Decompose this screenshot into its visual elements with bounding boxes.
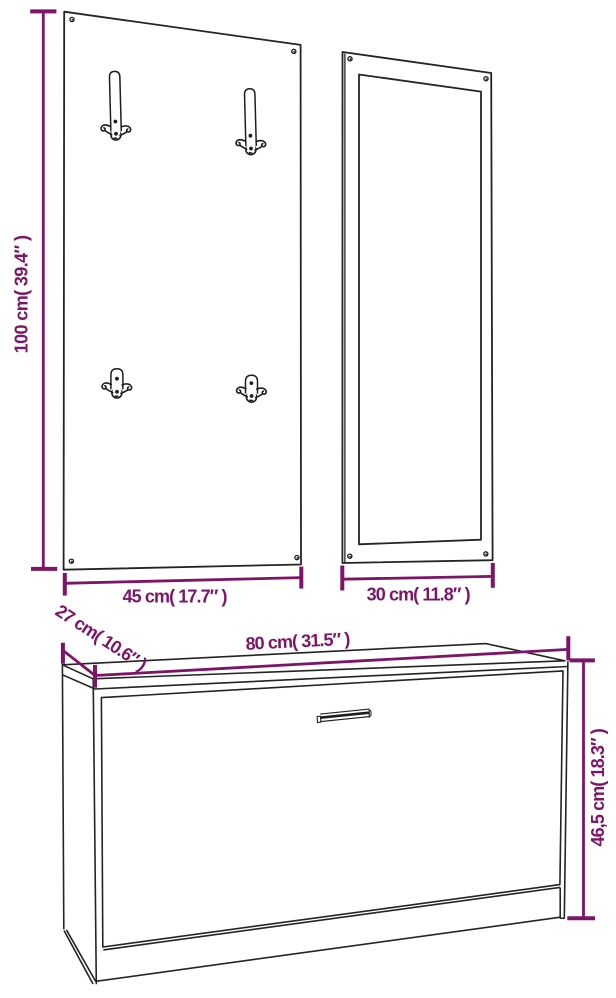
svg-text:100 cm( 39.4″ ): 100 cm( 39.4″ ) xyxy=(11,235,31,353)
svg-text:45 cm( 17.7″ ): 45 cm( 17.7″ ) xyxy=(123,587,228,607)
svg-text:30 cm( 11.8″ ): 30 cm( 11.8″ ) xyxy=(367,585,471,605)
svg-text:46,5 cm( 18.3″ ): 46,5 cm( 18.3″ ) xyxy=(588,728,608,846)
svg-text:80 cm( 31.5″ ): 80 cm( 31.5″ ) xyxy=(245,629,351,654)
